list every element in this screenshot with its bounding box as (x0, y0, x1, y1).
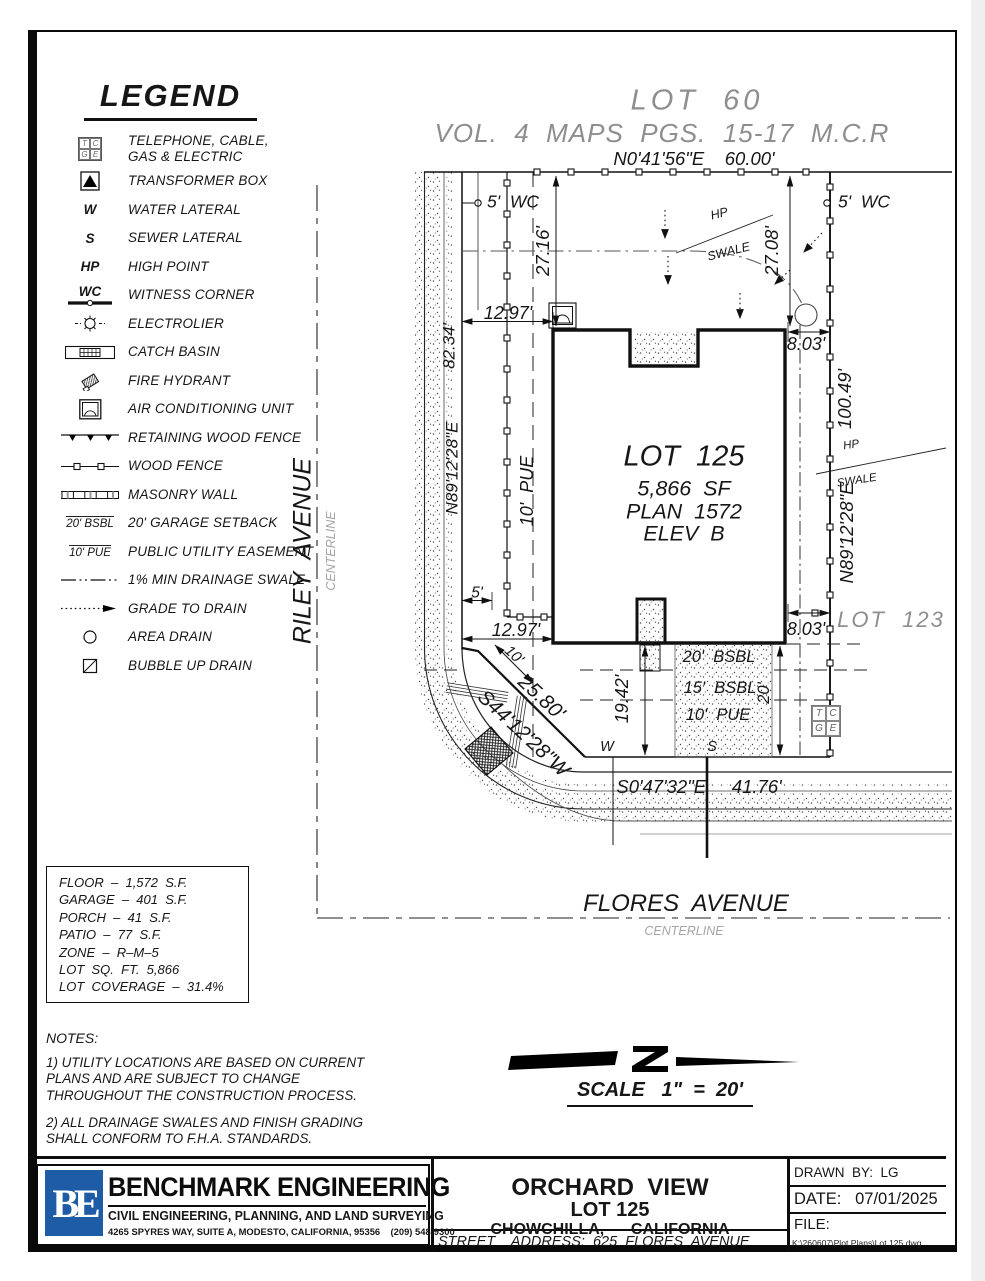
area-stats-box: FLOOR – 1,572 S.F. GARAGE – 401 S.F. POR… (46, 866, 249, 1003)
map-reference-label: VOL. 4 MAPS PGS. 15-17 M.C.R (435, 120, 890, 146)
witness-corner-right-label: 5' WC (838, 193, 890, 211)
scale-label: SCALE 1" = 20' (567, 1079, 753, 1107)
porch (634, 332, 696, 365)
note-1: 1) UTILITY LOCATIONS ARE BASED ON CURREN… (46, 1055, 398, 1104)
bubble-up-drain-icon (58, 658, 122, 674)
scale-bar (508, 1046, 799, 1072)
stat-line: FLOOR – 1,572 S.F. (59, 874, 248, 891)
electrolier-icon (58, 315, 122, 332)
flores-avenue-label: FLORES AVENUE (583, 892, 789, 916)
pue-10-label: 10' PUE (686, 707, 751, 724)
stat-line: PATIO – 77 S.F. (59, 926, 248, 943)
legend-item: S SEWER LATERAL (58, 227, 358, 250)
legend-title: LEGEND (84, 78, 257, 121)
lot-plan-label: PLAN 1572 (626, 501, 742, 523)
water-lateral-label: W (600, 740, 614, 755)
firm-name: BENCHMARK ENGINEERING (108, 1172, 450, 1203)
street-address: STREET ADDRESS: 625 FLORES AVENUE (438, 1234, 750, 1250)
catch-basin-legend-icon (58, 345, 122, 360)
legend-item: FIRE HYDRANT (58, 369, 358, 392)
pue-vertical-label: 10' PUE (518, 456, 536, 526)
area-drain-icon (795, 304, 817, 326)
date: DATE: 07/01/2025 (794, 1190, 938, 1209)
legend-item: RETAINING WOOD FENCE (58, 426, 358, 449)
dim-12-97-bottom: 12.97' (492, 621, 540, 639)
pue-icon: 10' PUE (58, 545, 122, 559)
titleblock-vline-2 (787, 1156, 790, 1250)
legend-item: AIR CONDITIONING UNIT (58, 398, 358, 421)
riley-avenue-label: RILEY AVENUE (291, 458, 316, 644)
sewer-lateral-label: S (707, 740, 717, 755)
stat-line: PORCH – 41 S.F. (59, 909, 248, 926)
grade-to-drain-icon (58, 604, 122, 613)
water-lateral-icon: W (58, 202, 122, 217)
masonry-wall-icon (58, 490, 122, 500)
wood-fence-icon (58, 462, 122, 471)
lot-sf-label: 5,866 SF (637, 478, 730, 500)
firm-tagline: CIVIL ENGINEERING, PLANNING, AND LAND SU… (108, 1209, 444, 1223)
patio (637, 599, 665, 643)
legend-item: HP HIGH POINT (58, 255, 358, 278)
drawn-by: DRAWN BY: LG (794, 1165, 899, 1180)
note-2: 2) ALL DRAINAGE SWALES AND FINISH GRADIN… (46, 1115, 398, 1148)
dim-27-08: 27.08' (763, 226, 782, 276)
bsbl-20-label: 20' BSBL (683, 649, 756, 666)
lot-60-label: LOT 60 (631, 87, 764, 116)
legend-item: TRANSFORMER BOX (58, 170, 358, 193)
file-path: K:\260607\Plot Plans\Lot 125.dwg (792, 1238, 921, 1248)
stat-line: LOT COVERAGE – 31.4% (59, 978, 248, 995)
stat-line: ZONE – R–M–5 (59, 944, 248, 961)
west-length-label: 82.34' (441, 323, 458, 369)
firm-name-underline (108, 1205, 426, 1207)
garage-setback-icon: 20' BSBL (58, 516, 122, 530)
titleblock-drawn-divider (787, 1185, 946, 1187)
high-point-icon: HP (58, 259, 122, 274)
lot-123-label: LOT 123 (837, 609, 945, 631)
notes: NOTES: 1) UTILITY LOCATIONS ARE BASED ON… (46, 1030, 398, 1159)
dim-8-03-bottom: 8.03' (787, 620, 825, 638)
witness-corner-left-label: 5' WC (487, 193, 539, 211)
project-title: ORCHARD VIEW (511, 1174, 708, 1202)
legend-item: WC WITNESS CORNER (58, 284, 358, 307)
area-drain-legend-icon (58, 629, 122, 645)
titleblock-divider (28, 1156, 946, 1159)
south-bearing-label: S0'47'32"E 41.76' (616, 778, 781, 797)
benchmark-logo: BE (45, 1170, 103, 1236)
legend-item: TC GE TELEPHONE, CABLE, GAS & ELECTRIC (58, 133, 358, 164)
transformer-box-icon (58, 171, 122, 191)
witness-corner-icon: WC (58, 284, 122, 307)
west-bearing-label: N89'12'28"E (444, 422, 461, 515)
file-label: FILE: (794, 1216, 830, 1233)
project-lot: LOT 125 (571, 1199, 650, 1222)
bsbl-15-label: 15' BSBL (684, 680, 757, 697)
drainage-swale-icon (58, 577, 122, 583)
stat-line: GARAGE – 401 S.F. (59, 891, 248, 908)
sewer-lateral-icon: S (58, 231, 122, 246)
north-bearing-label: N0'41'56"E 60.00' (613, 150, 774, 169)
dim-27-16: 27.16' (534, 226, 553, 276)
plot-plan-sheet: LEGEND TC GE TELEPHONE, CABLE, GAS & ELE… (0, 0, 985, 1281)
stat-line: LOT SQ. FT. 5,866 (59, 961, 248, 978)
dim-12-97-top: 12.97' (484, 304, 532, 322)
dim-20: 20' (756, 682, 773, 704)
titleblock-date-divider (787, 1212, 946, 1214)
dim-19-42: 19.42' (613, 675, 631, 723)
lot-elev-label: ELEV B (643, 523, 724, 545)
tcge-utility-box: TC GE (811, 705, 841, 737)
retaining-wood-fence-icon (58, 432, 122, 443)
legend-item: CATCH BASIN (58, 341, 358, 364)
lot-name-label: LOT 125 (624, 443, 745, 472)
fire-hydrant-icon (58, 371, 122, 391)
stoop (640, 645, 660, 671)
dim-8-03-top: 8.03' (787, 335, 825, 353)
flores-centerline-label: CENTERLINE (644, 925, 723, 938)
tcge-icon: TC GE (58, 137, 122, 161)
legend-item: BUBBLE UP DRAIN (58, 654, 358, 677)
legend-item: W WATER LATERAL (58, 198, 358, 221)
dim-5: 5' (471, 585, 483, 601)
ac-unit-legend-icon (58, 399, 122, 420)
notes-title: NOTES: (46, 1030, 398, 1046)
riley-centerline-label: CENTERLINE (325, 511, 338, 590)
legend-item: ELECTROLIER (58, 312, 358, 335)
firm-address: 4265 SPYRES WAY, SUITE A, MODESTO, CALIF… (108, 1226, 455, 1237)
